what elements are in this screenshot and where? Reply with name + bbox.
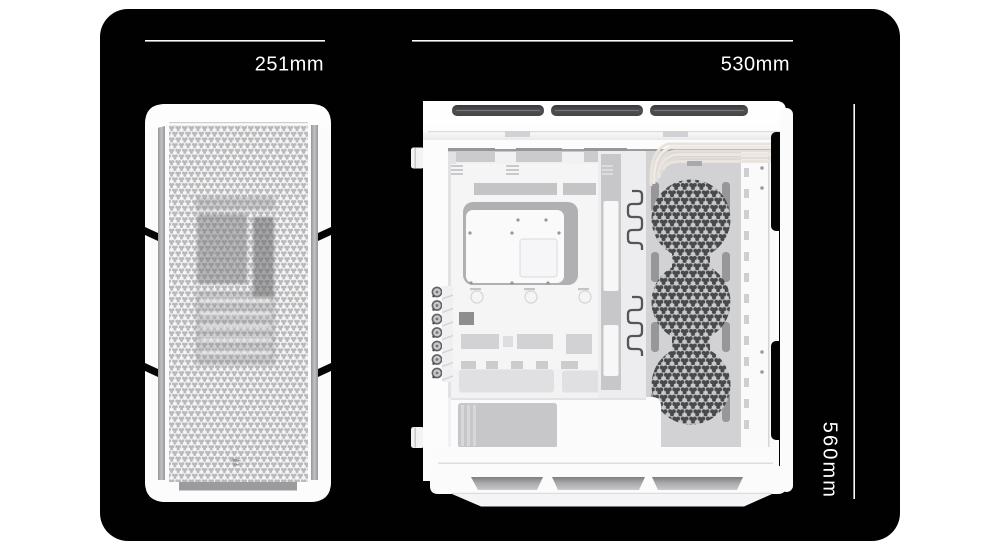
svg-text:560mm: 560mm xyxy=(819,422,841,499)
svg-text:251mm: 251mm xyxy=(255,54,324,76)
svg-text:530mm: 530mm xyxy=(721,54,790,76)
